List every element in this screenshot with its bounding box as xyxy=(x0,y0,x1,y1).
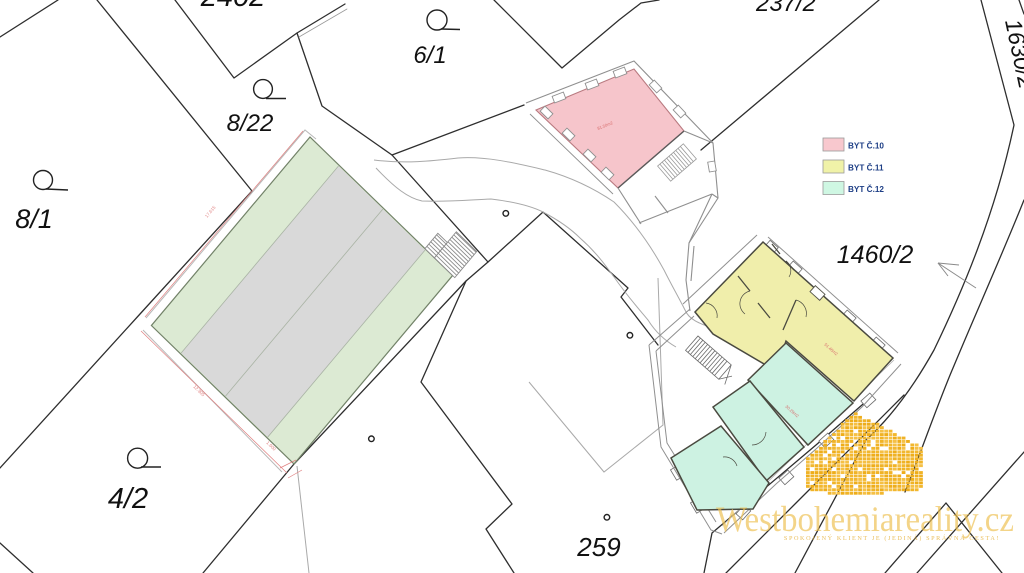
svg-text:BYT Č.10: BYT Č.10 xyxy=(848,140,884,151)
svg-text:2402: 2402 xyxy=(200,0,266,13)
svg-text:BYT Č.11: BYT Č.11 xyxy=(848,162,884,173)
svg-text:8/1: 8/1 xyxy=(15,204,53,234)
svg-text:4/2: 4/2 xyxy=(108,483,148,515)
svg-text:BYT Č.12: BYT Č.12 xyxy=(848,183,884,194)
svg-text:6/1: 6/1 xyxy=(413,42,446,69)
svg-text:8/22: 8/22 xyxy=(227,110,274,137)
svg-text:SPOKOJENÝ KLIENT JE (JEDINÁ) S: SPOKOJENÝ KLIENT JE (JEDINÁ) SPRÁVNÁ CES… xyxy=(784,534,1000,542)
svg-text:237/2: 237/2 xyxy=(755,0,816,17)
svg-text:Westbohemiareality.cz: Westbohemiareality.cz xyxy=(716,499,1014,539)
svg-text:259: 259 xyxy=(576,532,620,562)
svg-text:1460/2: 1460/2 xyxy=(837,241,914,269)
